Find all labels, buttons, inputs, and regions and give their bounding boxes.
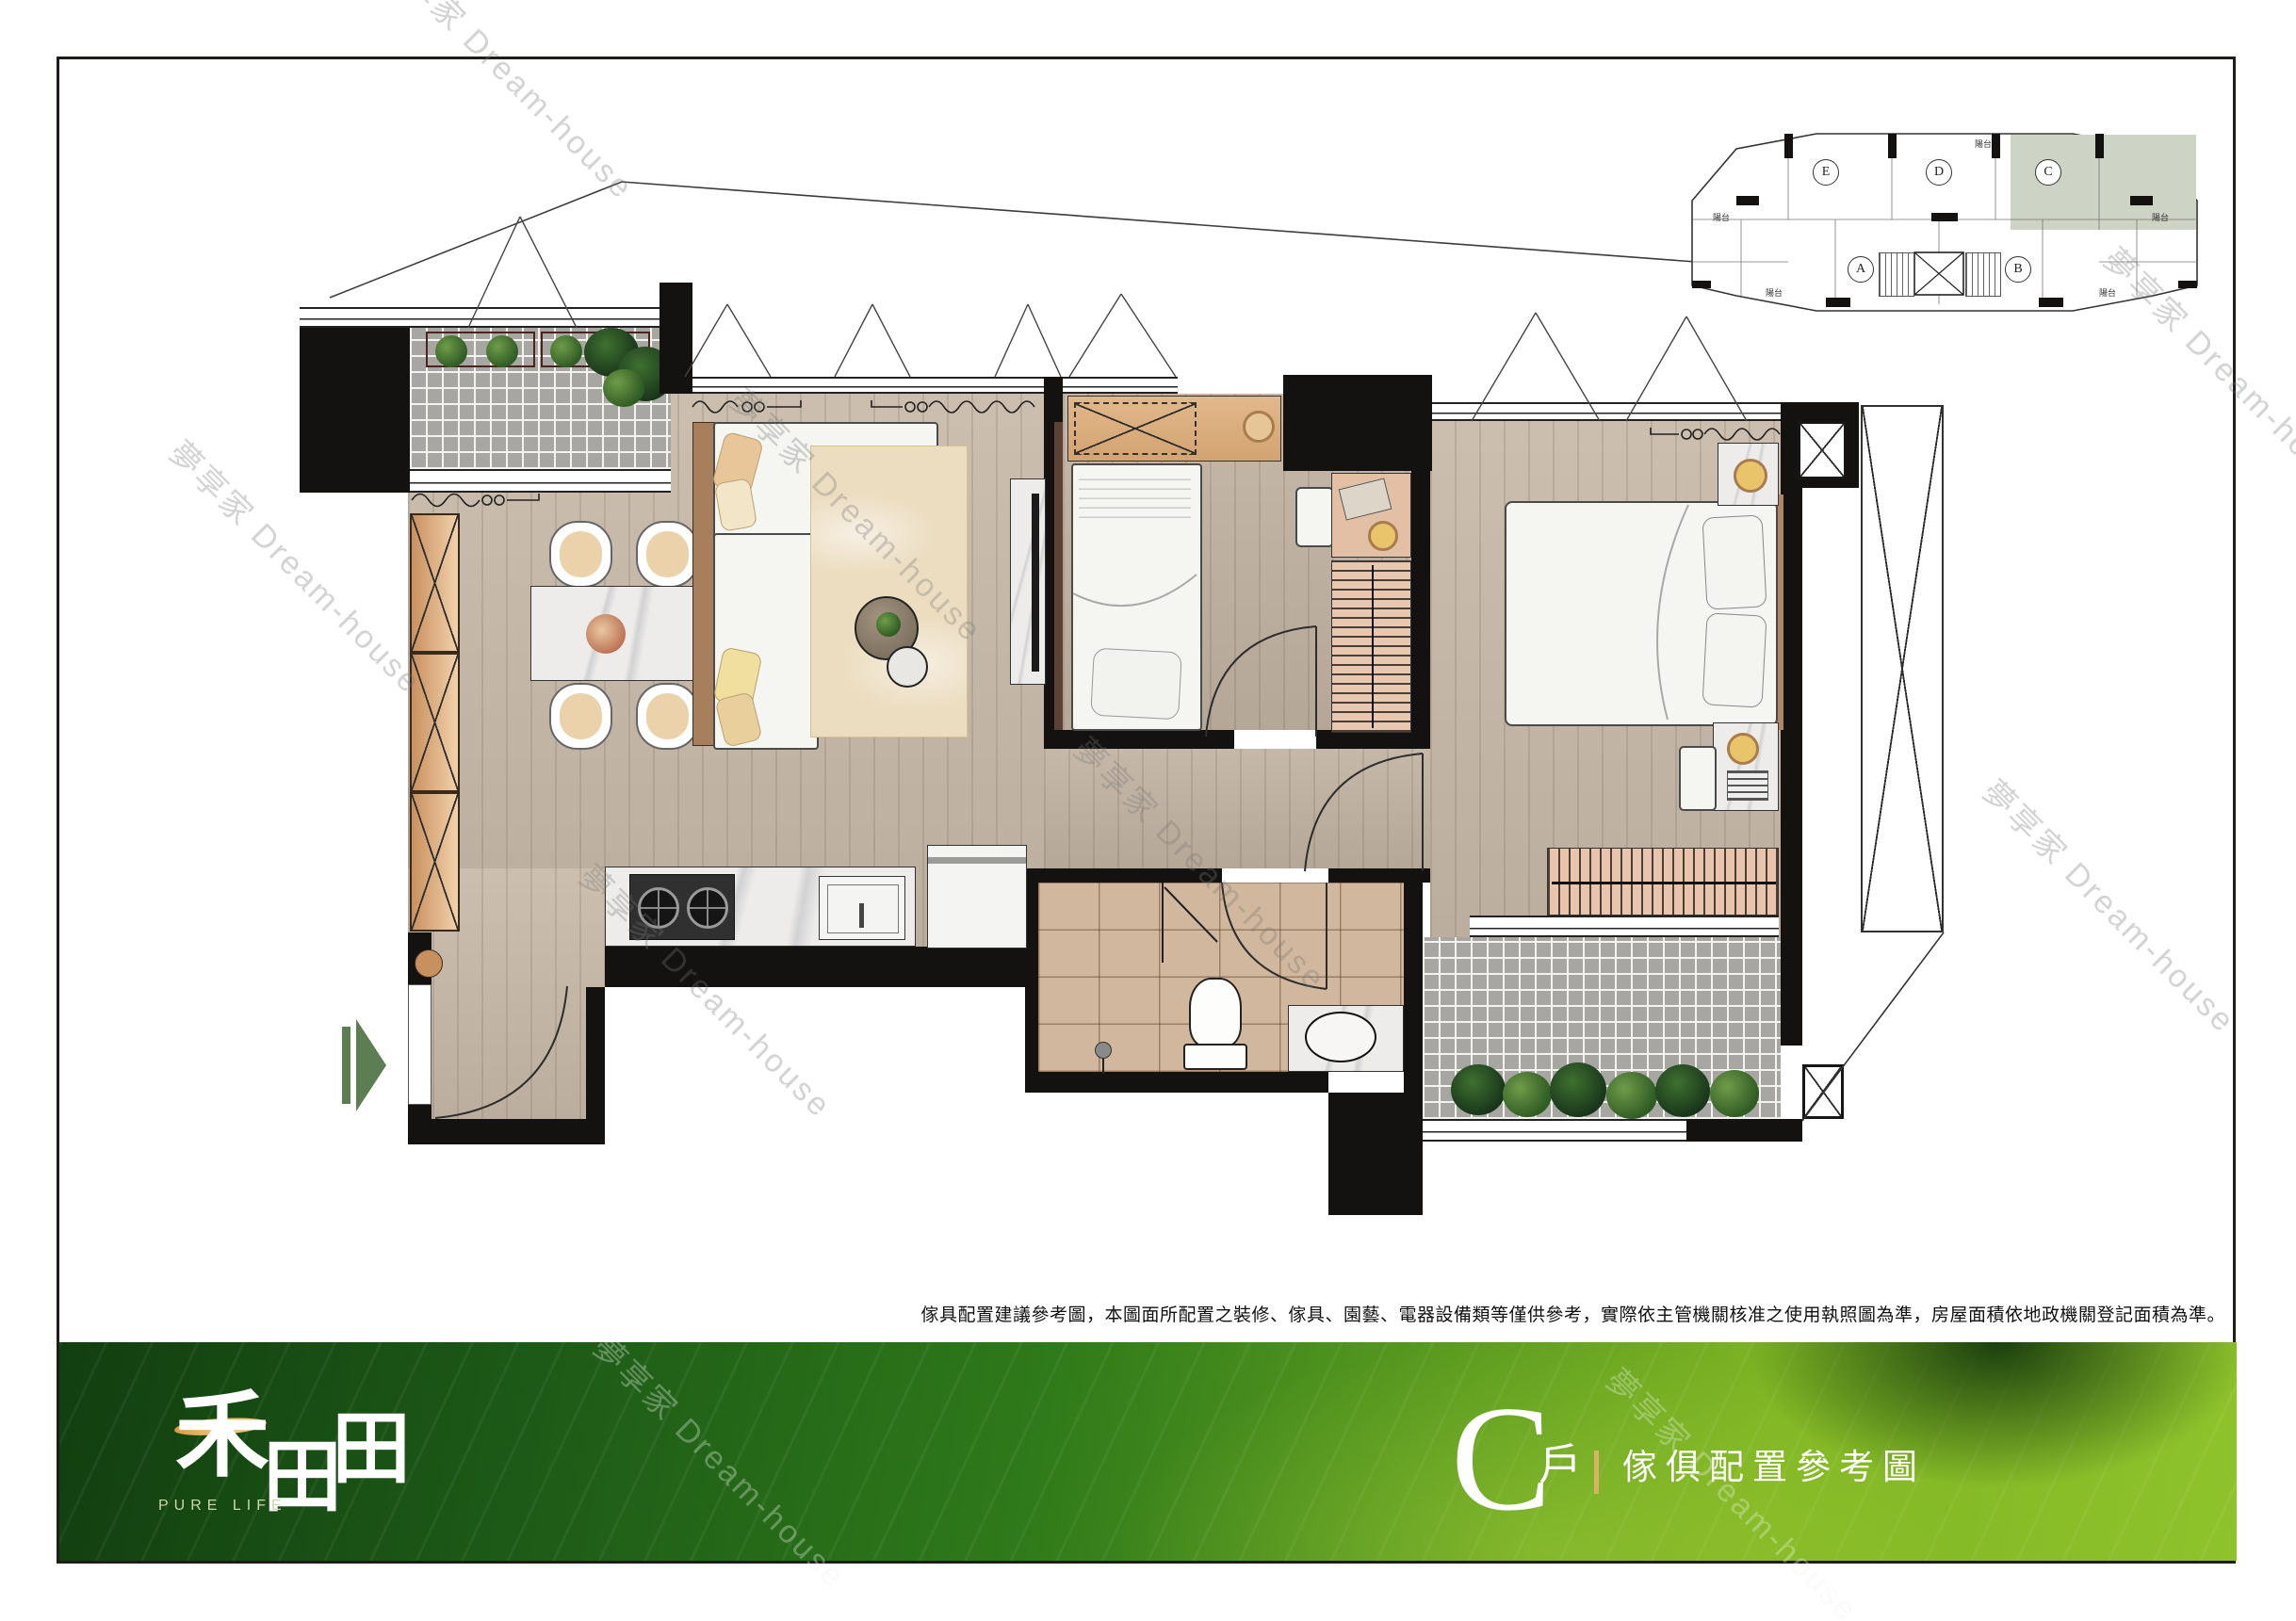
shrub-icon <box>550 335 582 367</box>
cabinet-end-round <box>415 949 443 978</box>
rear-balcony-railing <box>1423 1119 1686 1142</box>
table-plant-icon <box>876 612 901 637</box>
books-icon <box>1727 770 1768 801</box>
faucet-icon <box>859 903 864 928</box>
burner-icon <box>687 887 728 929</box>
disclaimer-text: 傢具配置建議參考圖，本圖面所配置之裝修、傢具、園藝、電器設備類等僅供參考，實際依… <box>920 1301 2225 1326</box>
wall <box>1328 1093 1423 1215</box>
stool <box>1243 411 1275 443</box>
dining-chair <box>549 521 612 588</box>
closet-rod <box>1372 565 1375 728</box>
shoe-cabinet <box>410 792 460 932</box>
unit-label-a: A <box>1848 256 1874 283</box>
single-bed <box>1071 463 1202 731</box>
balcony-label: 陽台 <box>2099 286 2116 299</box>
bedroom2-tv-wall <box>1054 422 1063 742</box>
balcony-label: 陽台 <box>1713 211 1730 223</box>
balcony-plant-icon <box>1710 1070 1759 1117</box>
bedroom2-window <box>1063 377 1178 394</box>
wall <box>1025 1072 1328 1093</box>
key-plan-core <box>1914 252 1963 295</box>
balcony-plant-icon <box>1606 1072 1657 1119</box>
master-window <box>1430 402 1781 421</box>
fridge-handle <box>928 857 1026 864</box>
wall <box>1686 1119 1802 1142</box>
brand-tagline: PURE LIFE <box>158 1498 287 1515</box>
planter-box-1 <box>426 332 535 367</box>
wash-basin <box>1305 1012 1376 1062</box>
cup-icon <box>1734 459 1767 493</box>
side-table <box>887 646 928 688</box>
master-balcony-sill <box>1470 916 1779 937</box>
wall <box>1781 937 1802 1046</box>
floor-plan-page: E D C A B 陽台 陽台 陽台 陽台 陽台 傢具配置建議參考圖，本圖面所配… <box>0 0 2296 1621</box>
bedroom-chair <box>1679 746 1717 811</box>
bedroom2-side-desk <box>1331 473 1411 558</box>
dining-chair <box>636 683 699 750</box>
tv-console <box>1010 478 1046 685</box>
entry-threshold <box>408 984 432 1105</box>
entry-arrow-bar <box>342 1027 350 1104</box>
wall <box>300 328 410 493</box>
bedroom2-closet <box>1331 560 1411 733</box>
wall <box>1044 730 1234 749</box>
gold-divider <box>1594 1451 1599 1494</box>
wardrobe-rod <box>1552 882 1776 884</box>
dining-chair <box>549 683 612 750</box>
master-wardrobe <box>1547 848 1779 916</box>
balcony-plant-icon <box>1503 1072 1552 1117</box>
balcony-railing-top <box>300 307 671 328</box>
stairs <box>1879 252 1914 297</box>
brand-char-tian2: 田 <box>332 1409 411 1488</box>
unit-label-e: E <box>1813 159 1839 186</box>
wall <box>659 283 692 394</box>
balcony-label: 陽台 <box>1766 286 1783 299</box>
wall <box>1328 868 1430 883</box>
nightstand <box>1718 443 1779 506</box>
brand-char-he: 禾 <box>175 1388 269 1483</box>
nightstand <box>1713 722 1779 811</box>
column <box>1798 421 1847 479</box>
wall <box>586 987 605 1119</box>
unit-word: 戶 <box>1539 1443 1582 1486</box>
cup-icon <box>1727 733 1759 765</box>
bed-pillow <box>1702 612 1767 707</box>
double-bed <box>1505 501 1778 726</box>
shrub-icon <box>435 335 467 367</box>
wall <box>1781 488 1802 937</box>
overhead-cabinet-dashed <box>1074 402 1197 455</box>
balcony-sill-bottom <box>410 469 671 493</box>
bed-pillow <box>1702 514 1767 609</box>
balcony-plant-icon <box>1550 1062 1606 1117</box>
balcony-plant-icon <box>1451 1064 1506 1115</box>
unit-label-c: C <box>2035 159 2061 186</box>
unit-label-b: B <box>2005 256 2031 283</box>
toilet <box>1189 978 1242 1047</box>
balcony-label: 陽台 <box>1975 138 1992 150</box>
tv-screen <box>1032 494 1039 672</box>
bed-pillow <box>1090 648 1182 721</box>
wall <box>408 1119 605 1144</box>
wall <box>1404 883 1423 1093</box>
kitchen-sink <box>819 876 905 940</box>
wall <box>1411 471 1430 749</box>
stairs <box>1965 252 2001 297</box>
bay-window-outline <box>1861 405 1944 932</box>
column <box>1802 1064 1844 1119</box>
unit-letter: C <box>1451 1383 1552 1533</box>
desk-tray <box>1339 478 1392 520</box>
sofa-back <box>692 422 715 746</box>
wall <box>1316 730 1430 749</box>
desk-chair <box>1295 487 1334 547</box>
refrigerator <box>927 845 1027 948</box>
wall <box>1283 375 1432 471</box>
balcony-plant-icon <box>1655 1064 1710 1117</box>
entry-arrow-icon <box>356 1019 386 1111</box>
corner-plant-icon <box>603 369 644 407</box>
bed-sheet-lines <box>1079 477 1191 518</box>
shower-head-icon <box>1095 1042 1112 1059</box>
wall <box>408 1105 432 1119</box>
balcony-label: 陽台 <box>2152 211 2169 223</box>
shoe-cabinet <box>410 513 460 653</box>
table-centerpiece <box>586 614 626 654</box>
shrub-icon <box>486 335 518 367</box>
toilet-tank <box>1183 1044 1247 1070</box>
unit-label-d: D <box>1926 159 1952 186</box>
dining-chair <box>636 521 699 588</box>
cup-icon <box>1368 521 1398 551</box>
